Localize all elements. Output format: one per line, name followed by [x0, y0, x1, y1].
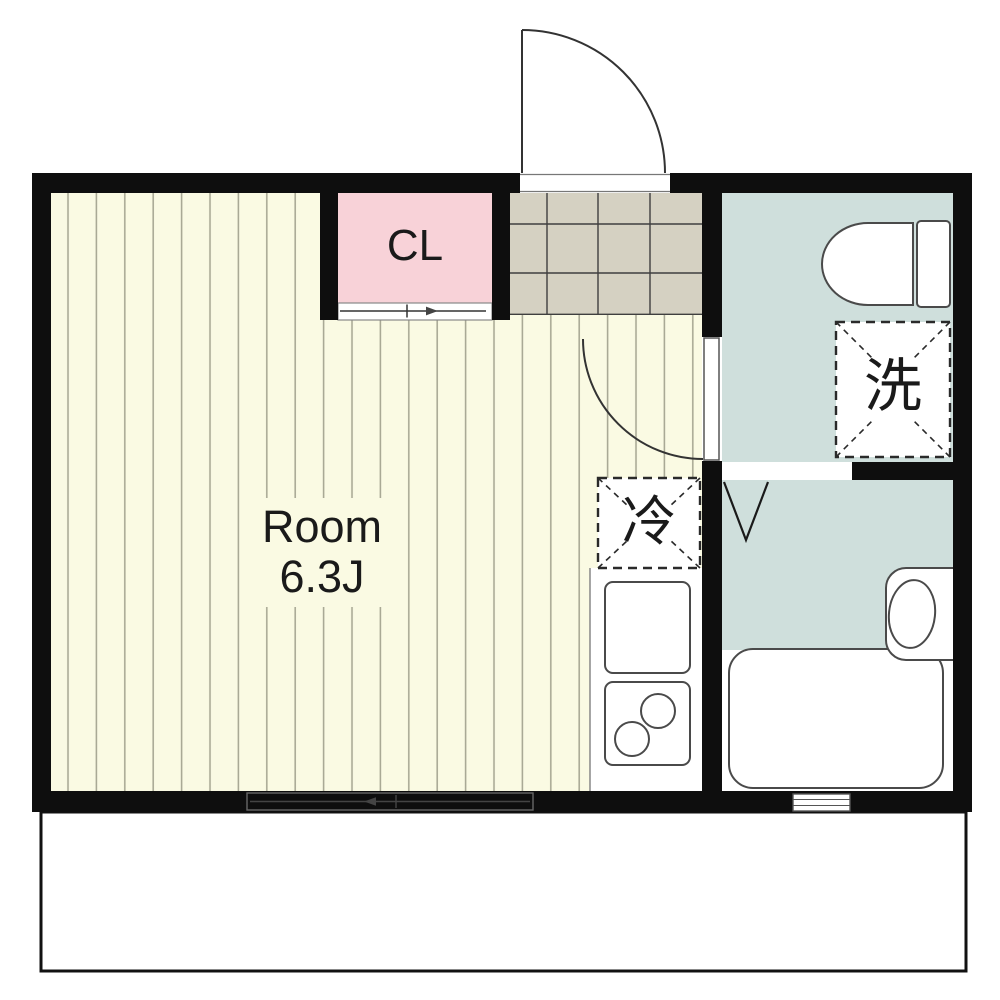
room-label: Room 6.3J [248, 498, 396, 607]
wall-closet-right [492, 191, 510, 320]
entrance-tile-floor [510, 191, 702, 315]
wall-closet-left [320, 191, 338, 320]
closet-sliding-door [338, 303, 492, 320]
bathroom-door-opening [722, 462, 852, 480]
toilet-tank [917, 221, 950, 307]
refrigerator-label: 冷 [622, 492, 676, 552]
wall-left [32, 173, 51, 812]
room-size: 6.3J [262, 552, 382, 602]
wall-top [32, 173, 972, 193]
balcony-outline [41, 812, 966, 971]
stove-burner [615, 722, 649, 756]
kitchen-sink [605, 582, 690, 673]
floor-plan-drawing [0, 0, 1000, 1000]
floor-plan: Room 6.3J CL 冷 洗 [0, 0, 1000, 1000]
entrance-threshold [520, 173, 670, 193]
wall-divider [702, 191, 722, 791]
room-name: Room [262, 502, 382, 552]
wall-right [953, 173, 972, 812]
toilet-bowl [822, 223, 913, 305]
stove-burner [641, 694, 675, 728]
washer-label: 洗 [864, 355, 922, 420]
entrance-door [522, 30, 665, 173]
bathtub [729, 649, 943, 788]
kitchen-counter [605, 582, 690, 765]
closet-label: CL [387, 221, 443, 270]
toilet [822, 221, 950, 307]
bathroom-vent-window [793, 794, 850, 811]
